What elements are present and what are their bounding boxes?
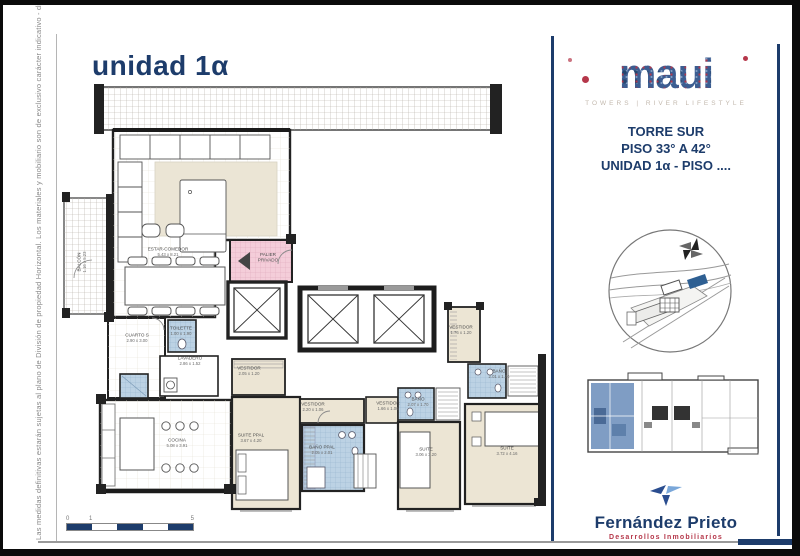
logo-dot-icon — [743, 56, 748, 61]
core-block — [652, 406, 668, 420]
coffee-table — [180, 180, 226, 252]
tower-name: TORRE SUR — [556, 123, 776, 140]
private-elevator — [228, 282, 286, 338]
balcony-left — [64, 194, 114, 318]
parking-block — [660, 298, 679, 312]
laundry — [160, 356, 218, 396]
toilette — [168, 320, 196, 352]
middle-suite — [366, 388, 460, 511]
page-edge — [0, 0, 800, 5]
core-block — [674, 406, 690, 420]
floor-plan-drawing — [60, 82, 550, 544]
sidebar: MAUI TOWERS | RIVER LIFESTYLE TORRE SUR … — [556, 36, 776, 542]
sidebar-right-rule — [777, 44, 780, 536]
page-edge — [0, 0, 3, 556]
logo-dot-icon — [568, 58, 572, 62]
unit-line: UNIDAD 1α - PISO .... — [556, 157, 776, 174]
balcony-top — [94, 84, 502, 134]
scale-segment — [92, 524, 117, 530]
developer-logo-icon — [647, 482, 685, 508]
scale-label: 0 — [66, 516, 69, 522]
elevator-core — [300, 286, 434, 350]
bed — [400, 432, 430, 488]
floor-range: PISO 33° A 42° — [556, 140, 776, 157]
center-vestidor — [300, 399, 364, 423]
scale-label: 1 — [89, 516, 92, 522]
kitchen-island — [120, 418, 154, 470]
kitchen — [98, 400, 232, 491]
tower-info: TORRE SUR PISO 33° A 42° UNIDAD 1α - PIS… — [556, 123, 776, 174]
site-location-diagram — [605, 226, 735, 356]
page-edge — [0, 549, 800, 556]
maui-logo: MAUI TOWERS | RIVER LIFESTYLE — [556, 50, 776, 107]
stair — [354, 454, 376, 488]
developer-logo: Fernández Prieto Desarrollos Inmobiliari… — [556, 482, 776, 541]
disclaimer-text: Las medidas definitivas estarán sujetas … — [34, 35, 43, 540]
floor-key-plan — [580, 368, 765, 468]
sidebar-left-rule — [551, 36, 554, 542]
right-suite — [448, 307, 546, 506]
private-lobby — [230, 240, 292, 282]
unit-title: unidad 1α — [92, 50, 229, 82]
scale-label: 5 — [191, 516, 194, 522]
developer-name: Fernández Prieto — [556, 513, 776, 533]
scale-bar: 0 1 5 — [66, 516, 194, 532]
developer-tagline: Desarrollos Inmobiliarios — [556, 534, 776, 541]
bed — [485, 412, 540, 446]
master-suite — [232, 397, 300, 511]
master-bathroom — [302, 425, 376, 491]
service-bathroom — [120, 374, 148, 398]
logo-tagline: TOWERS | RIVER LIFESTYLE — [556, 100, 776, 107]
scale-segment — [67, 524, 92, 530]
logo-dot-icon — [582, 76, 589, 83]
scale-segment — [143, 524, 168, 530]
logo-wordmark: MAUI — [619, 50, 713, 98]
page-edge — [792, 0, 800, 556]
left-divider-line — [56, 34, 57, 542]
floor-plan-sheet: Las medidas definitivas estarán sujetas … — [0, 0, 800, 556]
scale-segment — [117, 524, 142, 530]
scale-segment — [168, 524, 193, 530]
master-vestidor — [232, 359, 285, 395]
